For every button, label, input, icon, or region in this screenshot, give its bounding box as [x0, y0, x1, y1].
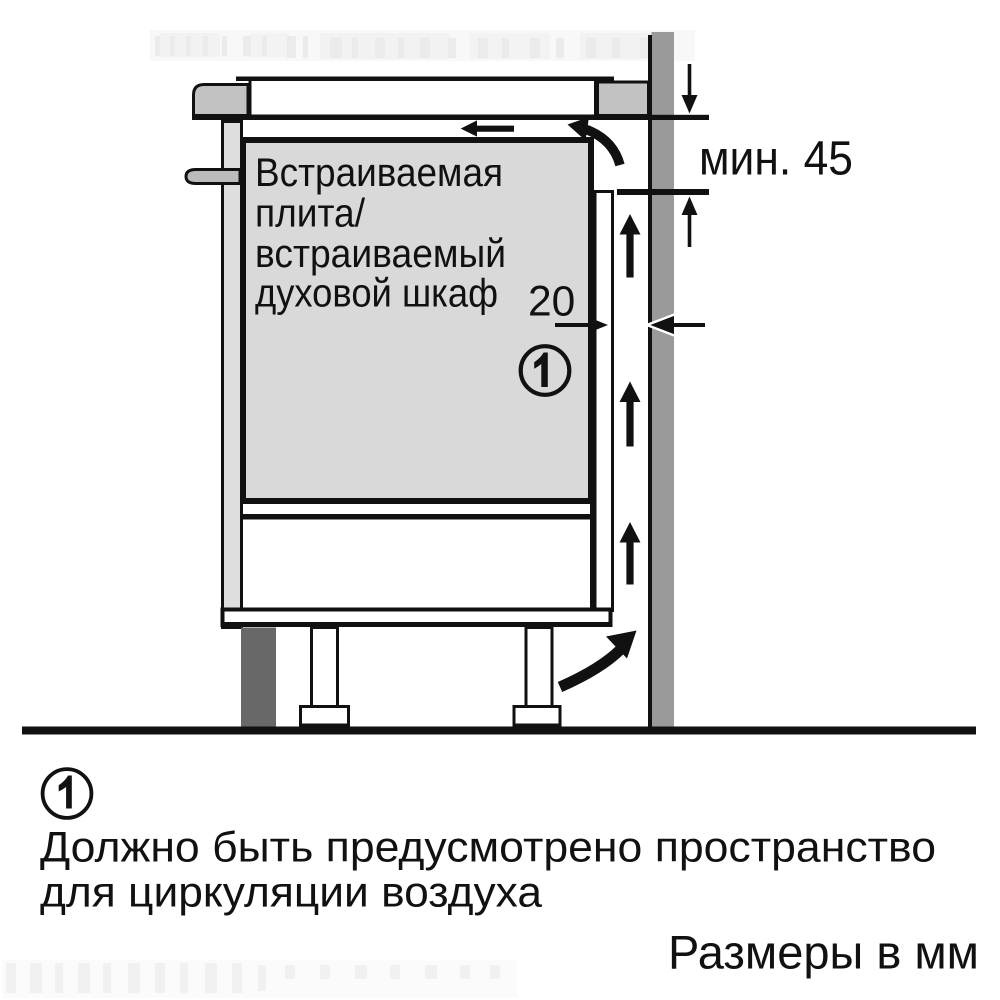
svg-text:духовой шкаф: духовой шкаф: [255, 272, 498, 316]
svg-text:мин. 45: мин. 45: [699, 133, 853, 186]
svg-text:20: 20: [528, 279, 575, 326]
svg-text:Встраиваемая: Встраиваемая: [255, 151, 503, 195]
svg-text:Должно быть предусмотрено прос: Должно быть предусмотрено пространство: [40, 824, 936, 872]
svg-text:плита/: плита/: [255, 192, 365, 236]
svg-text:для циркуляции воздуха: для циркуляции воздуха: [40, 869, 542, 917]
svg-text:встраиваемый: встраиваемый: [255, 232, 506, 276]
svg-text:Размеры в мм: Размеры в мм: [668, 926, 979, 979]
